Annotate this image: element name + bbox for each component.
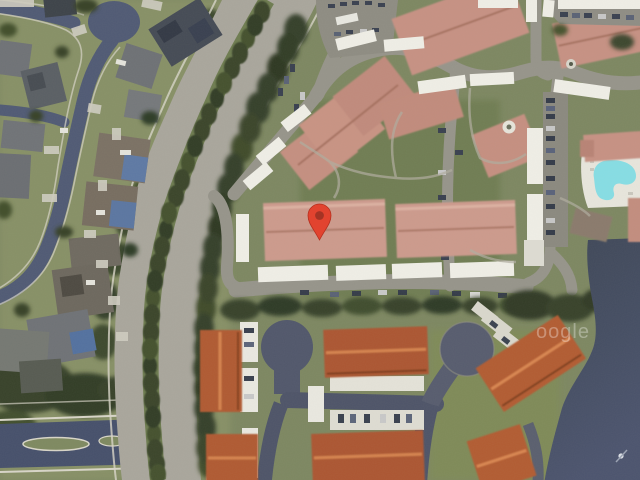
svg-text:oogle: oogle [536, 321, 590, 343]
